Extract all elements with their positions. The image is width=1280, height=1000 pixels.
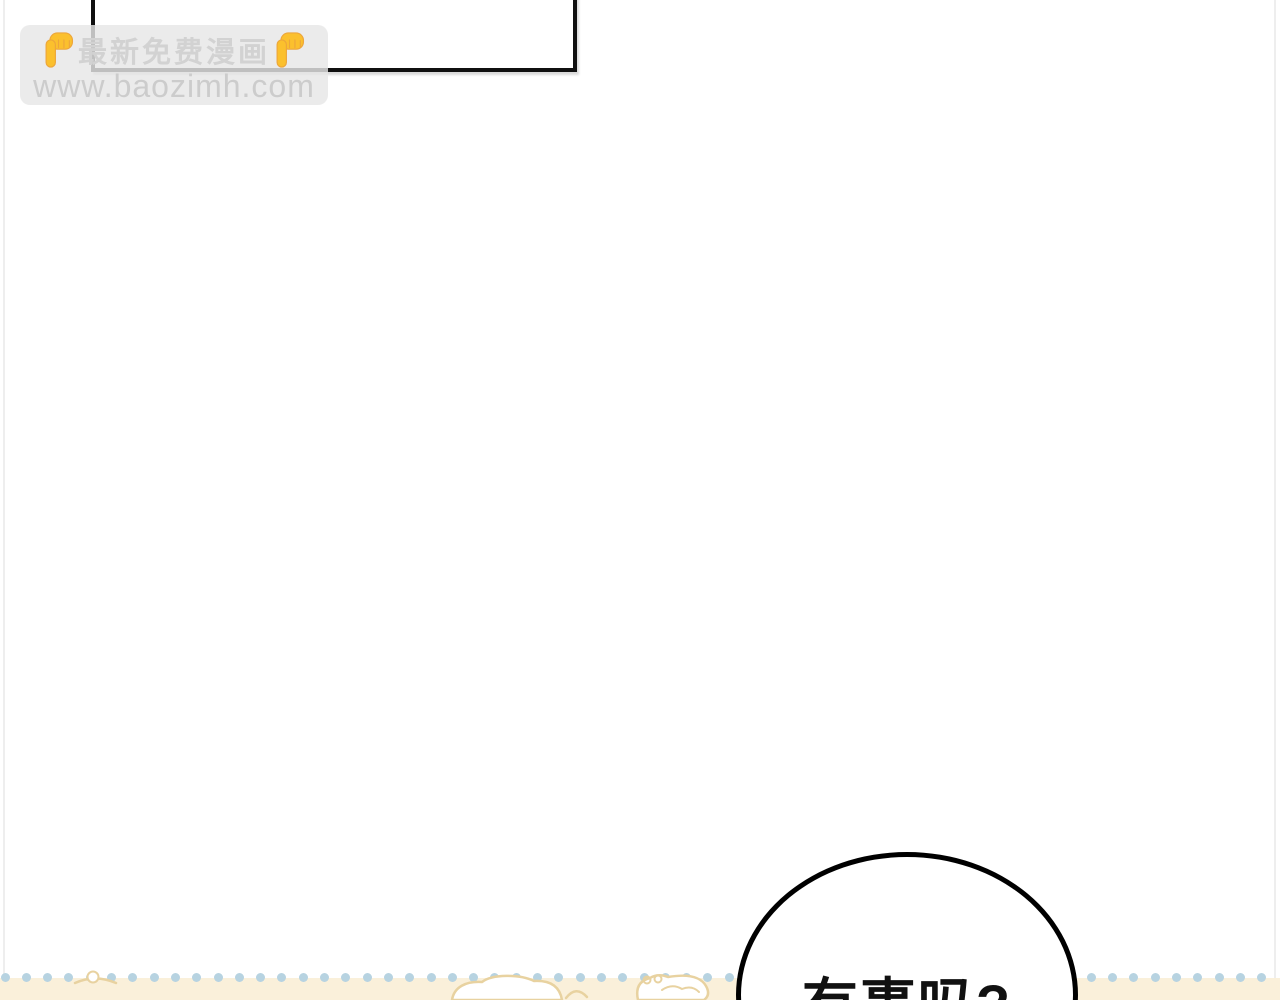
scallop-dot-row [0, 0, 1280, 1000]
watermark-title: 最新免费漫画 [78, 29, 270, 71]
speech-bubble-text: 有事吗? [736, 960, 1078, 1000]
page-edge-left [3, 0, 5, 1000]
comic-page: 最新免费漫画 www.baozimh.com 有事吗? [0, 0, 1280, 1000]
creature-doodle [637, 975, 708, 1000]
watermark-url: www.baozimh.com [20, 69, 328, 103]
footer-doodles [0, 960, 1280, 1000]
page-edge-right [1274, 0, 1276, 1000]
cloud-doodle [452, 976, 587, 1000]
pointing-down-icon [43, 32, 74, 68]
small-curve-doodle [75, 972, 116, 984]
pointing-down-icon [274, 32, 305, 68]
watermark-title-row: 最新免费漫画 [20, 31, 328, 69]
watermark-box: 最新免费漫画 www.baozimh.com [20, 25, 328, 105]
